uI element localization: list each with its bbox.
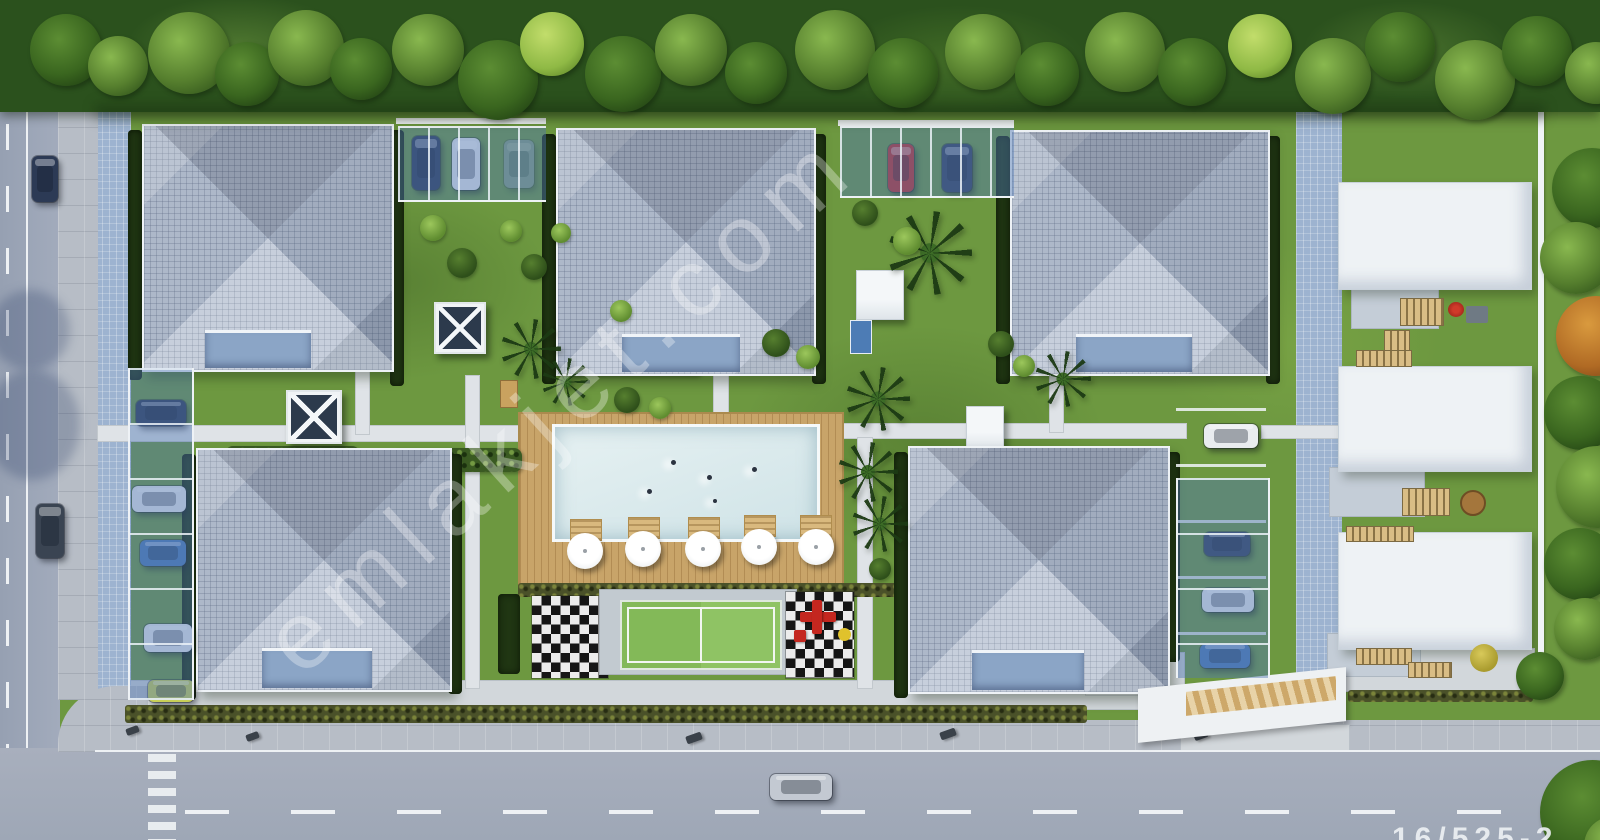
listing-code-text: 16/525-2 — [1392, 822, 1558, 840]
bush — [500, 220, 522, 242]
palm-tree — [852, 496, 908, 552]
bush — [762, 329, 790, 357]
bush — [1013, 355, 1035, 377]
tree — [330, 38, 392, 100]
bush — [521, 254, 547, 280]
tree — [868, 38, 938, 108]
palm-tree — [1035, 351, 1091, 407]
tree — [1015, 42, 1079, 106]
tree — [1228, 14, 1292, 78]
tree — [1544, 376, 1600, 450]
palm-tree — [838, 442, 898, 502]
tree — [1556, 446, 1600, 528]
tree — [795, 10, 875, 90]
bush — [893, 227, 921, 255]
tree — [88, 36, 148, 96]
tree — [1158, 38, 1226, 106]
tree — [1365, 12, 1435, 82]
autumn-tree — [1556, 296, 1600, 376]
tree — [1540, 222, 1600, 294]
tree — [585, 36, 661, 112]
bush — [447, 248, 477, 278]
tree — [1085, 12, 1165, 92]
bush — [988, 331, 1014, 357]
bush — [551, 223, 571, 243]
tree — [1502, 16, 1572, 86]
tree — [1295, 38, 1371, 114]
tree — [655, 14, 727, 86]
palm-tree — [846, 367, 910, 431]
aerial-site-plan-render: emlakjet.com 16/525-2 — [0, 0, 1600, 840]
bush — [796, 345, 820, 369]
tree — [725, 42, 787, 104]
tree — [1544, 528, 1600, 600]
tree — [945, 14, 1021, 90]
tree — [392, 14, 464, 86]
tree — [1552, 148, 1600, 228]
bush — [869, 558, 891, 580]
tree — [1554, 598, 1600, 660]
tree — [1516, 652, 1564, 700]
bush — [649, 397, 671, 419]
tree — [520, 12, 584, 76]
bush — [420, 215, 446, 241]
